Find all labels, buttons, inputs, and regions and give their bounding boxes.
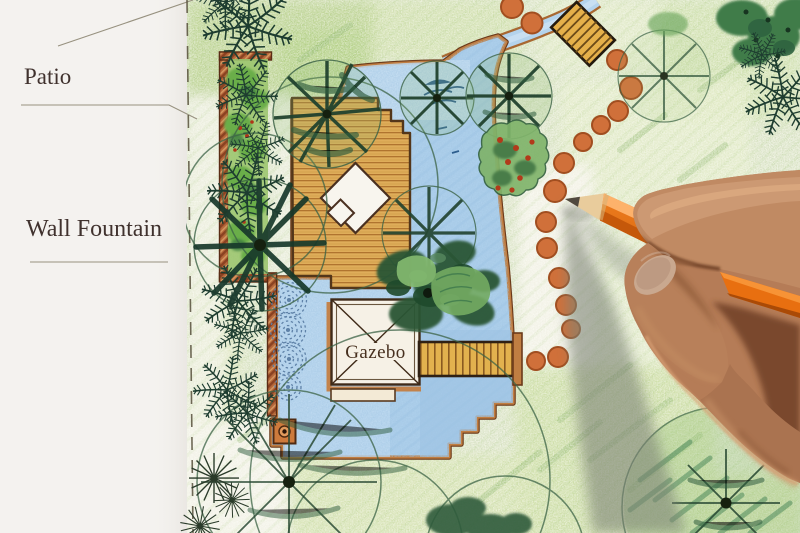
svg-text:Patio: Patio xyxy=(24,64,71,89)
svg-text:Wall Fountain: Wall Fountain xyxy=(26,216,162,242)
svg-text:Gazebo: Gazebo xyxy=(345,342,405,363)
